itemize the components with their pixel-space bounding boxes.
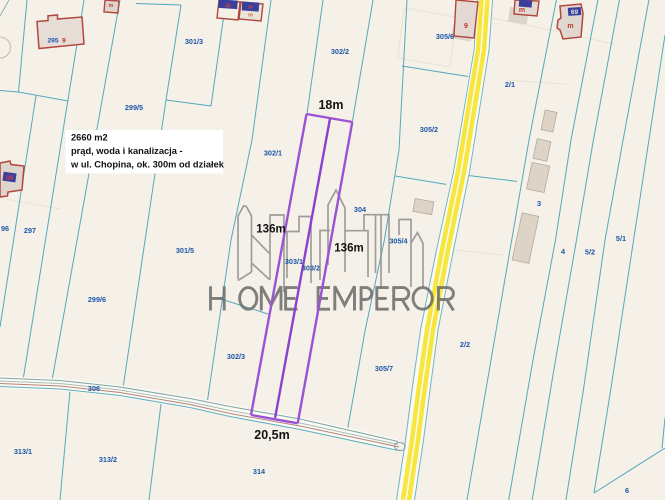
svg-text:314: 314	[253, 467, 266, 476]
svg-text:304: 304	[354, 205, 367, 214]
svg-text:302/1: 302/1	[264, 149, 282, 158]
svg-text:301/5: 301/5	[176, 246, 194, 255]
svg-text:305/4: 305/4	[389, 237, 408, 246]
svg-text:69: 69	[571, 9, 579, 16]
svg-text:m: m	[567, 23, 573, 30]
svg-text:306: 306	[88, 384, 100, 393]
svg-text:313/2: 313/2	[99, 455, 117, 464]
svg-text:18m: 18m	[318, 98, 343, 112]
svg-text:20,5m: 20,5m	[254, 428, 289, 442]
svg-text:9: 9	[62, 38, 66, 45]
svg-text:297: 297	[24, 226, 36, 235]
svg-text:303/1: 303/1	[285, 257, 303, 266]
svg-text:45: 45	[225, 4, 231, 10]
svg-text:prąd, woda i kanalizacja -: prąd, woda i kanalizacja -	[71, 146, 183, 156]
svg-text:w ul. Chopina, ok. 300m od dzi: w ul. Chopina, ok. 300m od działek	[70, 160, 225, 170]
svg-text:299/6: 299/6	[88, 295, 106, 304]
svg-text:9: 9	[464, 23, 468, 30]
svg-text:m: m	[109, 3, 114, 9]
svg-text:5/1: 5/1	[616, 234, 626, 243]
svg-text:6: 6	[625, 486, 629, 495]
svg-text:305/6: 305/6	[436, 32, 454, 41]
svg-text:313/1: 313/1	[14, 447, 32, 456]
svg-text:185: 185	[5, 176, 14, 182]
svg-text:136m: 136m	[334, 243, 363, 255]
svg-text:136m: 136m	[256, 224, 285, 236]
svg-text:303/2: 303/2	[302, 264, 320, 273]
svg-text:m: m	[519, 7, 525, 14]
svg-text:295: 295	[47, 38, 58, 45]
svg-text:5/2: 5/2	[585, 248, 595, 257]
svg-text:2/2: 2/2	[460, 340, 470, 349]
svg-text:2660 m2: 2660 m2	[71, 133, 108, 143]
svg-text:2/1: 2/1	[505, 80, 515, 89]
svg-text:302/3: 302/3	[227, 352, 245, 361]
svg-text:305/2: 305/2	[420, 125, 438, 134]
svg-text:299/5: 299/5	[125, 103, 143, 112]
svg-text:m: m	[248, 5, 253, 11]
svg-text:301/3: 301/3	[185, 37, 203, 46]
svg-text:305/7: 305/7	[375, 364, 393, 373]
svg-text:302/2: 302/2	[331, 47, 349, 56]
svg-text:3: 3	[537, 199, 541, 208]
svg-text:m: m	[248, 13, 253, 19]
svg-text:96: 96	[1, 224, 9, 233]
